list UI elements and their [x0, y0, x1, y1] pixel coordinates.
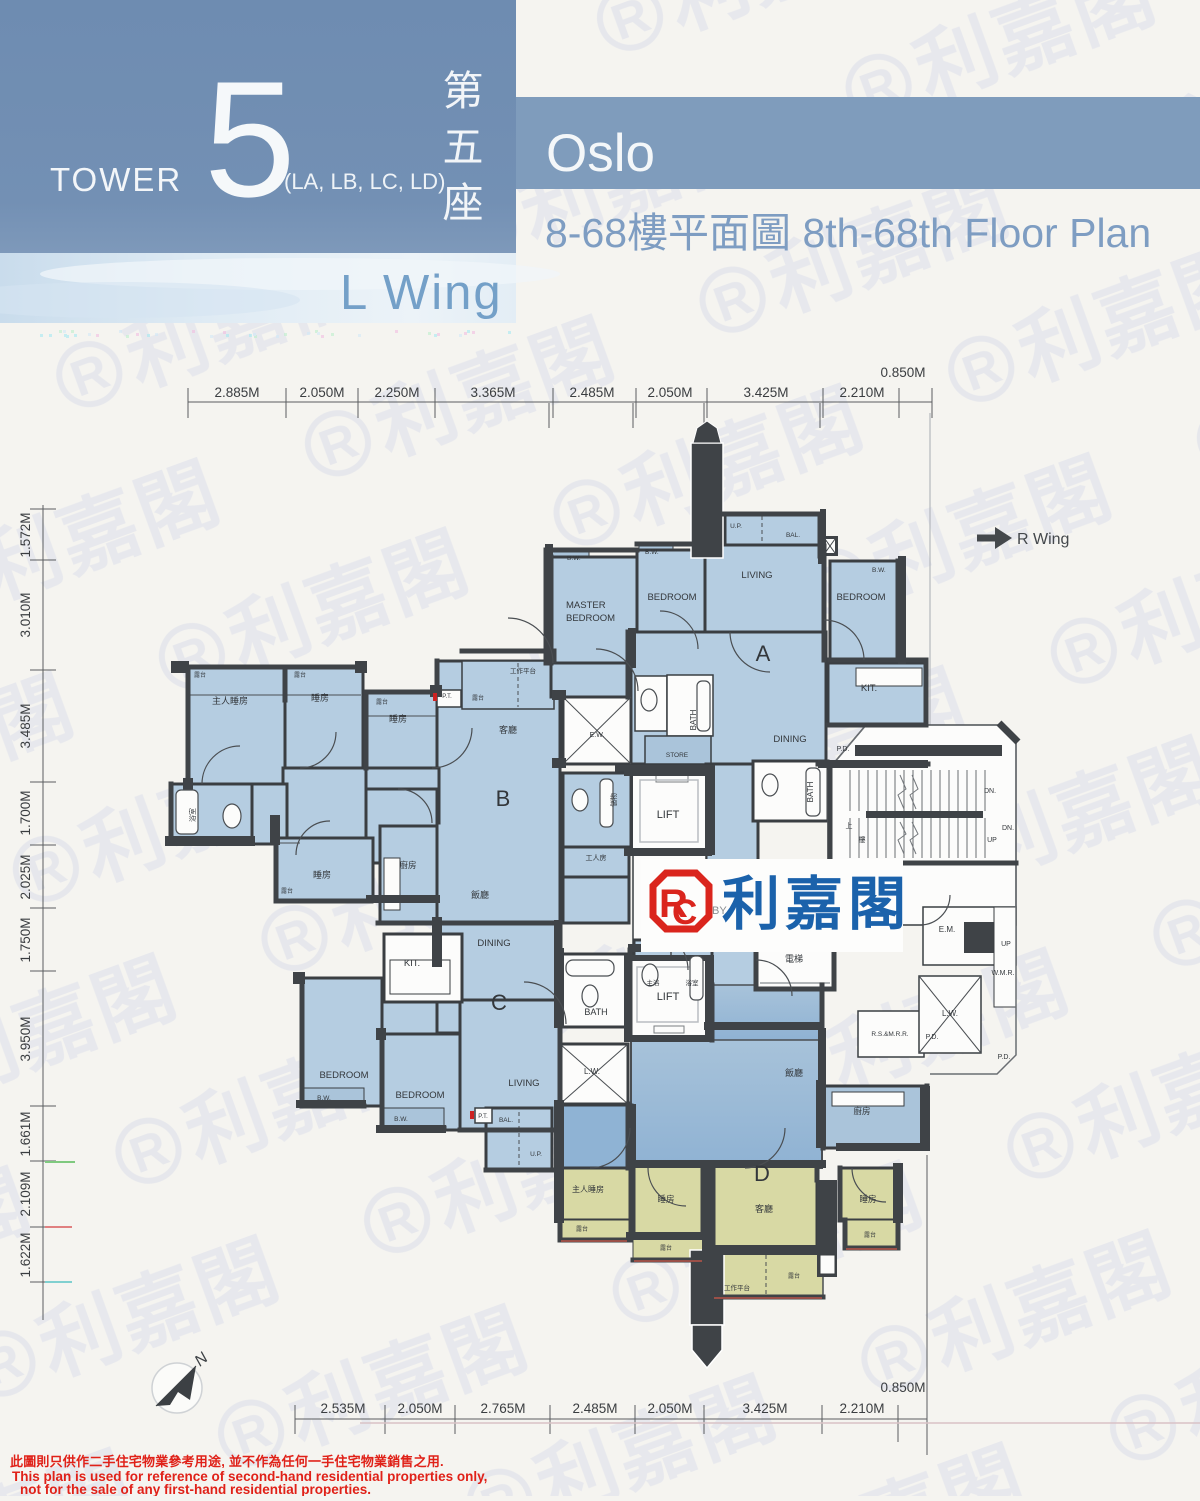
svg-text:D: D: [754, 1161, 770, 1186]
svg-text:2.885M: 2.885M: [214, 385, 259, 400]
svg-text:第: 第: [443, 68, 484, 114]
svg-text:睡房: 睡房: [859, 1194, 876, 1204]
svg-text:BAL.: BAL.: [499, 1117, 513, 1124]
svg-text:DN.: DN.: [984, 788, 996, 795]
svg-text:樓: 樓: [859, 835, 866, 844]
svg-text:工人房: 工人房: [586, 853, 607, 862]
svg-text:3.010M: 3.010M: [18, 592, 33, 637]
svg-text:睡房: 睡房: [311, 692, 329, 703]
svg-text:工作平台: 工作平台: [510, 666, 536, 675]
svg-text:DN.: DN.: [1002, 825, 1014, 832]
svg-text:客廳: 客廳: [755, 1203, 773, 1214]
svg-text:1.661M: 1.661M: [18, 1111, 33, 1156]
svg-text:2.050M: 2.050M: [647, 385, 692, 400]
svg-text:B.W.: B.W.: [567, 555, 581, 562]
svg-text:MASTER: MASTER: [566, 600, 606, 611]
svg-text:主人睡房: 主人睡房: [212, 695, 248, 706]
svg-text:B.W.: B.W.: [872, 567, 886, 574]
svg-text:UP: UP: [987, 837, 997, 844]
svg-text:工作平台: 工作平台: [724, 1283, 750, 1292]
svg-text:P.D.: P.D.: [837, 746, 850, 753]
svg-text:U.P.: U.P.: [730, 523, 742, 530]
svg-text:B: B: [496, 786, 511, 811]
svg-text:2.025M: 2.025M: [18, 854, 33, 899]
svg-text:浴室: 浴室: [188, 808, 197, 822]
svg-text:廚房: 廚房: [853, 1106, 870, 1116]
svg-text:上: 上: [846, 821, 853, 830]
svg-text:浴室: 浴室: [686, 978, 700, 987]
svg-text:LIFT: LIFT: [657, 809, 680, 821]
svg-text:P.D.: P.D.: [926, 1034, 939, 1041]
svg-text:not for the sale of any first-: not for the sale of any first-hand resid…: [20, 1482, 371, 1496]
svg-text:2.050M: 2.050M: [299, 385, 344, 400]
svg-text:露台: 露台: [576, 1225, 588, 1233]
svg-text:3.425M: 3.425M: [742, 1401, 787, 1416]
svg-text:BEDROOM: BEDROOM: [647, 592, 696, 603]
svg-text:2.210M: 2.210M: [839, 1401, 884, 1416]
svg-text:L.W.: L.W.: [942, 1009, 958, 1018]
svg-text:B.W.: B.W.: [317, 1095, 331, 1102]
svg-text:KIT.: KIT.: [861, 683, 877, 694]
svg-text:BATH: BATH: [584, 1007, 607, 1017]
svg-text:R.S.&M.R.R.: R.S.&M.R.R.: [871, 1031, 908, 1038]
svg-text:3.365M: 3.365M: [470, 385, 515, 400]
svg-text:2.250M: 2.250M: [374, 385, 419, 400]
svg-text:LIVING: LIVING: [741, 570, 772, 581]
svg-text:R Wing: R Wing: [1017, 531, 1069, 548]
svg-text:L Wing: L Wing: [340, 266, 503, 320]
svg-text:1.750M: 1.750M: [18, 917, 33, 962]
svg-text:1.622M: 1.622M: [18, 1232, 33, 1277]
svg-text:1.700M: 1.700M: [18, 790, 33, 835]
svg-text:2.765M: 2.765M: [480, 1401, 525, 1416]
svg-text:2.050M: 2.050M: [397, 1401, 442, 1416]
svg-text:主人睡房: 主人睡房: [572, 1184, 604, 1194]
svg-text:露台: 露台: [376, 698, 388, 706]
svg-text:BEDROOM: BEDROOM: [566, 613, 615, 624]
svg-text:DINING: DINING: [477, 938, 510, 949]
svg-text:W.M.R.: W.M.R.: [992, 970, 1015, 977]
svg-text:C: C: [672, 893, 697, 932]
svg-text:五: 五: [443, 124, 484, 170]
svg-text:3.950M: 3.950M: [18, 1016, 33, 1061]
svg-text:露台: 露台: [472, 694, 484, 702]
svg-text:LIFT: LIFT: [657, 991, 680, 1003]
svg-text:2.485M: 2.485M: [572, 1401, 617, 1416]
svg-text:STORE: STORE: [666, 752, 689, 759]
svg-text:BEDROOM: BEDROOM: [395, 1090, 444, 1101]
svg-text:E.M.: E.M.: [939, 925, 955, 934]
svg-text:露台: 露台: [281, 887, 293, 895]
svg-text:露台: 露台: [864, 1231, 876, 1239]
svg-text:儲物: 儲物: [609, 793, 618, 807]
svg-text:TOWER: TOWER: [50, 161, 182, 198]
svg-text:UP: UP: [1001, 941, 1011, 948]
svg-text:睡房: 睡房: [389, 713, 407, 724]
svg-text:主浴: 主浴: [647, 978, 661, 987]
svg-text:BAL.: BAL.: [786, 532, 800, 539]
svg-text:P.T.: P.T.: [478, 1114, 488, 1120]
svg-text:露台: 露台: [194, 671, 206, 679]
svg-text:E.W.: E.W.: [590, 732, 605, 739]
svg-text:飯廳: 飯廳: [785, 1067, 803, 1078]
svg-text:3.425M: 3.425M: [743, 385, 788, 400]
svg-text:睡房: 睡房: [313, 869, 331, 880]
svg-text:U.P.: U.P.: [530, 1151, 542, 1158]
svg-text:B.W.: B.W.: [645, 549, 659, 556]
svg-text:BEDROOM: BEDROOM: [319, 1070, 368, 1081]
svg-text:利嘉閣: 利嘉閣: [722, 872, 911, 937]
svg-text:L.W.: L.W.: [584, 1067, 600, 1076]
svg-text:DINING: DINING: [773, 734, 806, 745]
svg-text:0.850M: 0.850M: [880, 365, 925, 380]
svg-text:LIVING: LIVING: [508, 1078, 539, 1089]
svg-text:A: A: [756, 641, 771, 666]
svg-text:BATH: BATH: [806, 781, 815, 802]
svg-text:C: C: [491, 990, 507, 1015]
svg-text:電梯: 電梯: [785, 953, 803, 964]
svg-text:客廳: 客廳: [499, 724, 517, 735]
svg-text:2.109M: 2.109M: [18, 1171, 33, 1216]
svg-text:3.485M: 3.485M: [18, 703, 33, 748]
svg-text:1.572M: 1.572M: [18, 512, 33, 557]
svg-text:P.D.: P.D.: [998, 1054, 1011, 1061]
svg-text:8-68樓平面圖 8th-68th Floor Plan: 8-68樓平面圖 8th-68th Floor Plan: [545, 210, 1151, 256]
svg-text:飯廳: 飯廳: [471, 889, 489, 900]
svg-text:2.485M: 2.485M: [569, 385, 614, 400]
svg-text:露台: 露台: [660, 1244, 672, 1252]
svg-text:BEDROOM: BEDROOM: [836, 592, 885, 603]
svg-text:2.050M: 2.050M: [647, 1401, 692, 1416]
svg-text:0.850M: 0.850M: [880, 1380, 925, 1395]
svg-text:睡房: 睡房: [657, 1194, 674, 1204]
svg-text:露台: 露台: [294, 671, 306, 679]
svg-text:KIT.: KIT.: [404, 958, 420, 969]
svg-text:露台: 露台: [788, 1272, 800, 1280]
svg-text:座: 座: [443, 180, 484, 226]
svg-text:BATH: BATH: [689, 709, 698, 730]
svg-text:B.W.: B.W.: [394, 1116, 408, 1123]
svg-text:(LA, LB, LC, LD): (LA, LB, LC, LD): [284, 169, 445, 194]
svg-text:2.210M: 2.210M: [839, 385, 884, 400]
svg-text:2.535M: 2.535M: [320, 1401, 365, 1416]
svg-text:此圖則只供作二手住宅物業參考用途, 並不作為任何一手住宅物業: 此圖則只供作二手住宅物業參考用途, 並不作為任何一手住宅物業銷售之用.: [10, 1454, 444, 1469]
svg-text:P.T.: P.T.: [442, 694, 452, 700]
svg-text:5: 5: [204, 47, 296, 231]
svg-text:廚房: 廚房: [399, 860, 416, 870]
svg-text:Oslo: Oslo: [546, 124, 655, 183]
